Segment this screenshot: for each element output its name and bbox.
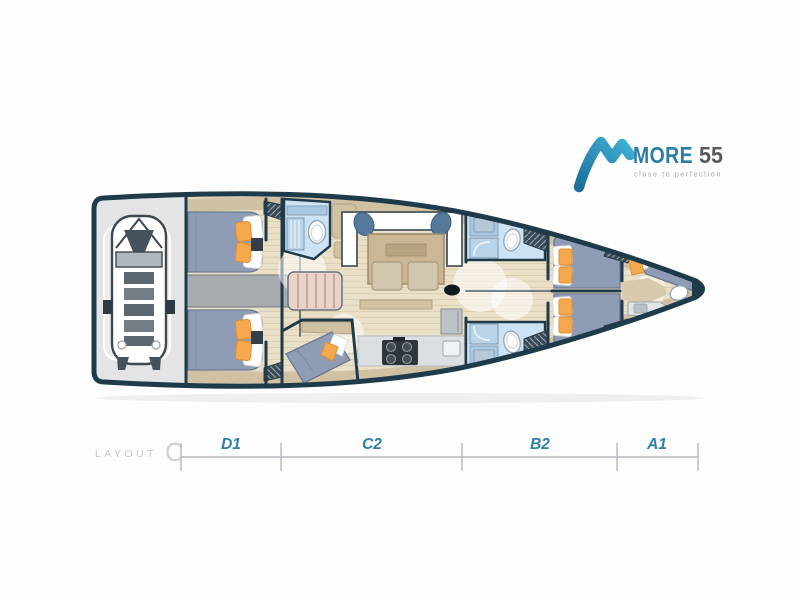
accent-cushion [559,249,572,265]
tender-garage [93,196,186,386]
accent-cushion [235,242,252,262]
dinghy-icon [103,216,175,370]
brand-name: MORE [633,142,693,168]
fridge-icon [441,309,462,334]
deck-plan [93,194,716,403]
dimension-scale: D1 C2 B2 A1 [181,436,698,471]
section-label-a1: A1 [646,436,667,453]
yacht-layout-page: MORE 55 close to perfection [0,0,800,600]
interior [93,196,716,388]
brand-tagline: close to perfection [634,172,722,179]
brand-m-icon [579,142,630,187]
aft-head [284,199,330,259]
companionway-steps [288,272,342,310]
stool [408,262,438,290]
stove-icon [382,337,418,365]
section-label-c2: C2 [362,436,382,453]
door-arc [491,278,533,320]
brand-logo: MORE 55 close to perfection [579,142,723,187]
section-label-d1: D1 [221,436,241,453]
mast-base-icon [444,285,460,296]
bedside-unit [251,238,263,251]
layout-label: LAYOUT C [95,437,184,467]
owner-bed-starboard [552,294,620,347]
galley-shelf [360,300,432,309]
basin-icon [634,304,647,313]
brand-model: 55 [699,142,723,168]
mid-cabin-shelf [302,322,352,334]
sink-icon [443,341,460,356]
accent-cushion [235,221,252,241]
plan-canvas: MORE 55 close to perfection [0,0,800,600]
section-label-b2: B2 [530,436,550,453]
table-insert [386,244,426,256]
hull-shadow [95,393,705,403]
stool [372,262,402,290]
vanity-counter [287,206,327,215]
accent-cushion [559,267,572,283]
layout-word: LAYOUT [95,448,157,460]
